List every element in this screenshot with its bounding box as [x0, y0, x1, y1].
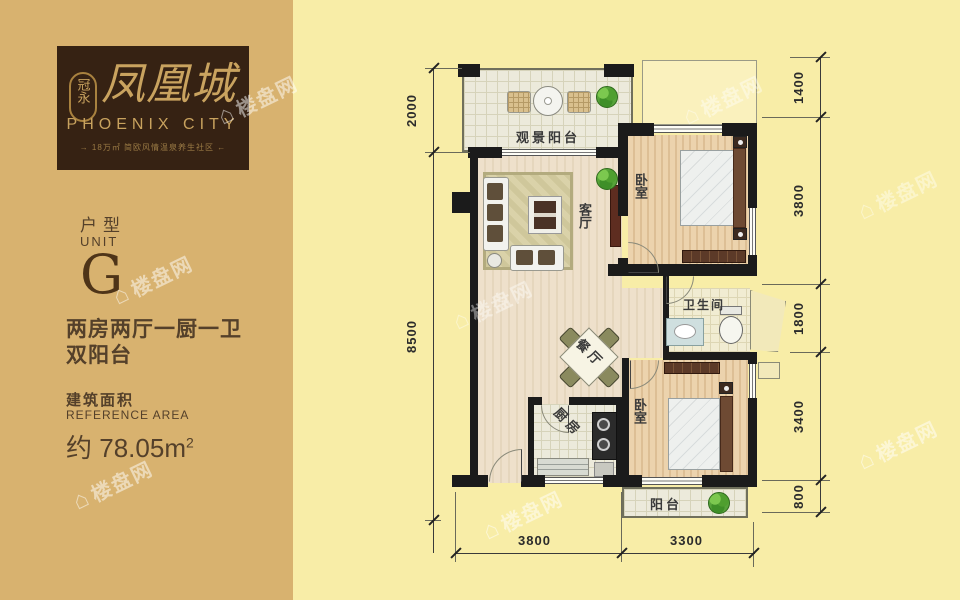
room-label-viewing-balcony: 观景阳台: [516, 127, 580, 146]
kitchen-counter: [537, 458, 589, 476]
balcony-slider-window: [502, 149, 596, 156]
plant-icon: [596, 168, 618, 190]
nightstand: [733, 136, 747, 148]
dim-label: 2000: [404, 94, 419, 127]
dim-label: 1400: [791, 71, 806, 104]
brand-seal: 冠永: [69, 72, 97, 122]
dim-label: 8500: [404, 320, 419, 353]
dim-label: 3800: [518, 533, 551, 548]
living-side-stool: [487, 253, 502, 268]
dim-label: 3800: [791, 184, 806, 217]
plant-icon: [596, 86, 618, 108]
unit-desc-line2: 双阳台: [66, 339, 132, 369]
bedroom1-bed: [680, 150, 734, 226]
plant-icon: [708, 492, 730, 514]
watermark: ⌂楼盘网: [853, 163, 943, 227]
bedroom2-window: [749, 364, 756, 398]
area-label-cn: 建筑面积: [66, 389, 134, 410]
balcony-chair-left: [507, 91, 531, 113]
bedroom2-bed: [668, 398, 720, 470]
room-label-bathroom: 卫生间: [683, 296, 725, 313]
dim-label: 800: [791, 484, 806, 509]
room-label-bedroom2: 卧室: [633, 398, 646, 424]
bedroom2-wardrobe: [664, 362, 720, 374]
dim-label: 1800: [791, 302, 806, 335]
dim-line-left: [433, 68, 434, 553]
bedroom1-wardrobe: [682, 250, 746, 263]
dim-line-bottom: [455, 553, 755, 554]
room-label-living: 客厅: [578, 203, 591, 229]
balcony-chair-right: [567, 91, 591, 113]
dim-label: 3400: [791, 400, 806, 433]
brand-tagline: → 18万㎡ 简欧风情温泉养生社区 ←: [57, 142, 249, 153]
room-label-balcony: 阳台: [650, 494, 682, 513]
toilet: [719, 316, 743, 344]
bedroom1-side-window: [749, 208, 756, 255]
nightstand: [733, 228, 747, 240]
balcony-slider: [642, 477, 702, 485]
brand-seal-text: 冠永: [77, 78, 90, 104]
nightstand: [719, 382, 733, 394]
bedroom2-bay: [758, 362, 780, 379]
bathroom-bay: [750, 290, 786, 352]
area-label-en: REFERENCE AREA: [66, 408, 189, 422]
bedroom2-headboard: [720, 396, 733, 472]
room-label-bedroom1: 卧室: [634, 173, 647, 199]
unit-type-cn: 户型: [80, 211, 126, 236]
dim-label: 3300: [670, 533, 703, 548]
watermark: ⌂楼盘网: [853, 413, 943, 477]
bedroom1-headboard: [733, 148, 746, 228]
